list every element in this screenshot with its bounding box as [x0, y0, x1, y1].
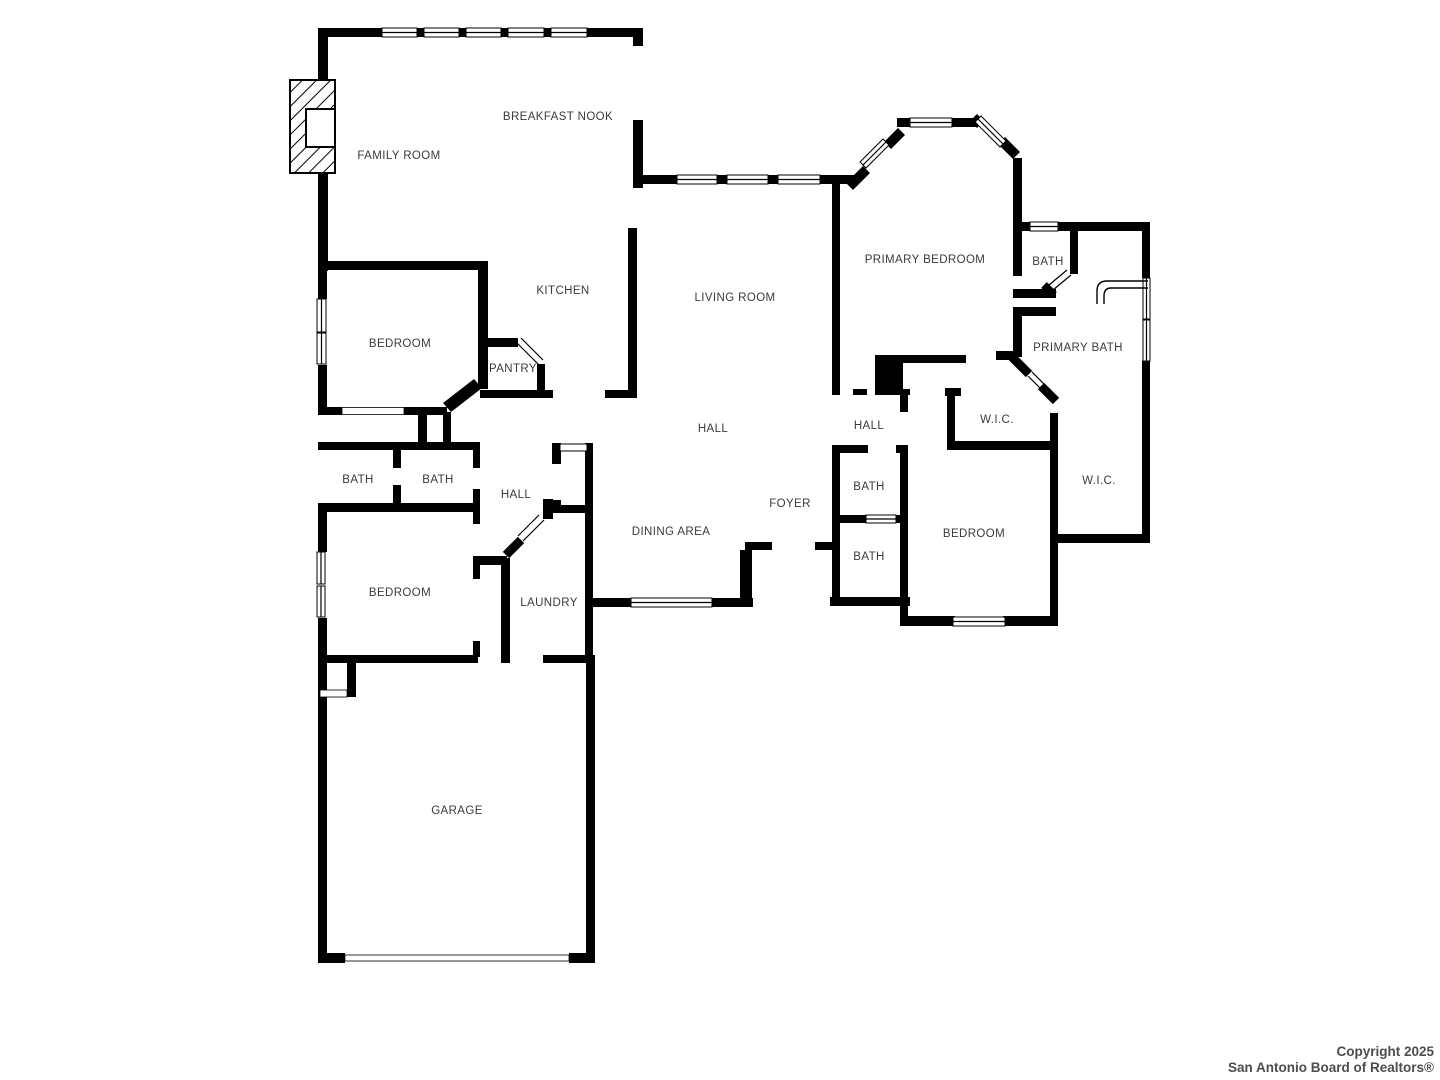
window [677, 175, 717, 184]
window [727, 175, 768, 184]
room-label-hall-3: HALL [698, 423, 729, 435]
window [910, 118, 952, 127]
room-label-foyer: FOYER [769, 498, 811, 510]
room-label-bath-2: BATH [342, 474, 373, 486]
room-label-bath-4: BATH [853, 481, 884, 493]
room-label-wic-1: W.I.C. [980, 414, 1014, 426]
room-label-living-room: LIVING ROOM [694, 292, 775, 304]
room-label-bedroom-1: BEDROOM [369, 338, 431, 350]
window [866, 515, 896, 523]
walls [318, 28, 1150, 963]
room-label-laundry: LAUNDRY [520, 597, 578, 609]
room-label-wic-2: W.I.C. [1082, 475, 1116, 487]
window [1143, 278, 1150, 319]
bathtub-icon [1097, 281, 1148, 304]
window [1143, 320, 1150, 361]
copyright-line1: Copyright 2025 [1336, 1044, 1434, 1059]
room-label-hall-2: HALL [501, 489, 532, 501]
room-label-bedroom-2: BEDROOM [943, 528, 1005, 540]
window [424, 28, 459, 37]
fireplace-icon [290, 80, 335, 173]
room-label-family-room: FAMILY ROOM [357, 150, 440, 162]
room-label-breakfast-nook: BREAKFAST NOOK [503, 111, 613, 123]
window [466, 28, 501, 37]
window [317, 586, 325, 617]
room-label-primary-bath: PRIMARY BATH [1033, 342, 1123, 354]
windows [317, 28, 1150, 626]
room-label-garage: GARAGE [431, 805, 483, 817]
window [860, 139, 889, 168]
window [382, 28, 417, 37]
window [317, 333, 326, 364]
window [551, 28, 587, 37]
floor-plan: BREAKFAST NOOK FAMILY ROOM KITCHEN BEDRO… [0, 0, 1440, 1080]
angled-door [516, 338, 543, 364]
door-threshold [342, 408, 404, 415]
window [508, 28, 544, 37]
room-label-bedroom-3: BEDROOM [369, 587, 431, 599]
window [317, 299, 326, 332]
copyright-line2: San Antonio Board of Realtors® [1228, 1060, 1434, 1075]
room-label-pantry: PANTRY [489, 363, 537, 375]
window [631, 598, 712, 607]
room-label-primary-bedroom: PRIMARY BEDROOM [865, 254, 986, 266]
angled-door [1049, 270, 1071, 290]
window [778, 175, 820, 184]
room-label-bath-5: BATH [853, 551, 884, 563]
window [1030, 222, 1058, 231]
room-label-hall-1: HALL [854, 420, 885, 432]
garage-door [345, 955, 569, 961]
room-labels: BREAKFAST NOOK FAMILY ROOM KITCHEN BEDRO… [342, 111, 1123, 817]
room-label-bath-1: BATH [1032, 256, 1063, 268]
room-label-bath-3: BATH [422, 474, 453, 486]
window [317, 552, 325, 584]
window [975, 116, 1006, 147]
copyright: Copyright 2025 San Antonio Board of Real… [1228, 1044, 1434, 1075]
door-threshold [320, 690, 347, 697]
window [560, 444, 587, 451]
room-label-kitchen: KITCHEN [536, 285, 589, 297]
angled-door [518, 515, 544, 541]
window [953, 617, 1005, 626]
room-label-dining-area: DINING AREA [632, 526, 711, 538]
floor-plan-page: BREAKFAST NOOK FAMILY ROOM KITCHEN BEDRO… [0, 0, 1440, 1080]
